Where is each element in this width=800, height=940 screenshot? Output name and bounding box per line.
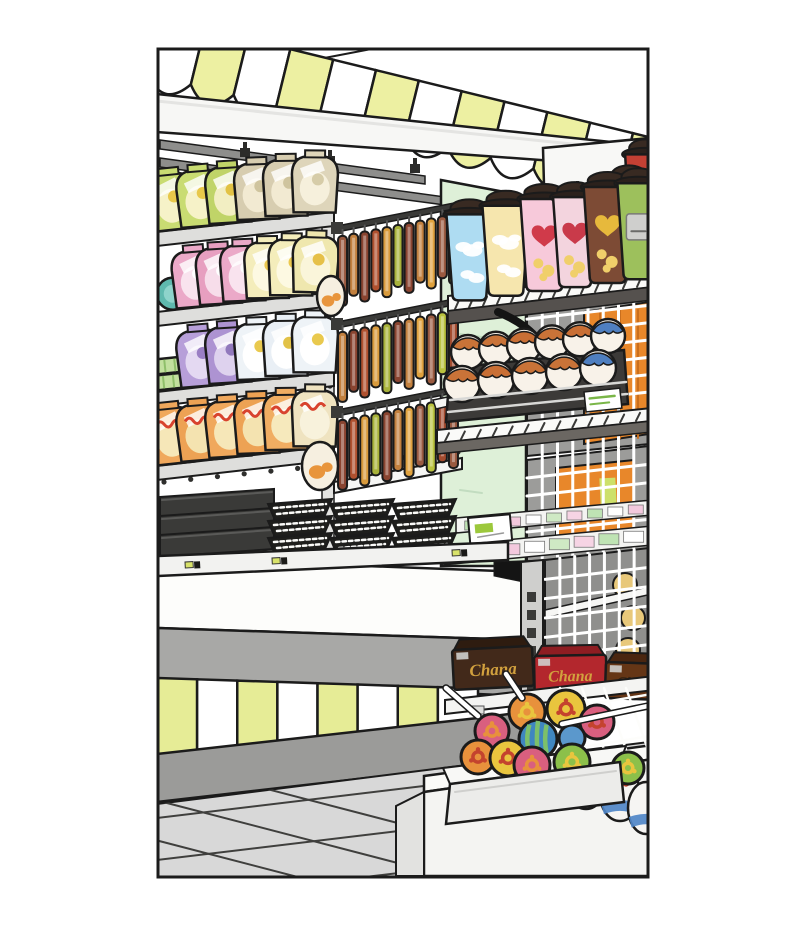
price-tag <box>608 507 623 516</box>
corner-tag <box>610 665 622 672</box>
bag-crimp <box>217 320 237 328</box>
bag-crimp <box>305 150 325 157</box>
ball-mark-dot <box>483 732 487 736</box>
store-illustration: ChanaChanaChana <box>0 0 800 940</box>
dot-motif <box>564 255 574 265</box>
price-tag <box>525 541 545 552</box>
bag-crimp <box>158 401 179 410</box>
awning-scallop-panel <box>157 678 197 760</box>
bag-crimp <box>187 324 208 333</box>
tag-yellow <box>185 562 193 568</box>
bun <box>546 354 582 390</box>
ball-mark-dot <box>556 711 560 715</box>
tag-black <box>281 557 287 564</box>
stick-sheen <box>419 321 422 373</box>
stick-sheen <box>374 233 377 285</box>
bun <box>580 350 616 386</box>
price-tag <box>587 509 602 518</box>
bag-crimp <box>187 398 208 407</box>
tube-bracket <box>243 142 247 149</box>
bag-crimp <box>276 314 296 321</box>
ball-mark-dot <box>563 763 567 767</box>
left-snack-shelves <box>145 150 339 480</box>
tube-bracket <box>410 164 420 173</box>
rail-bracket <box>331 406 343 418</box>
dot-motif <box>570 270 578 278</box>
jar-spot <box>322 462 333 472</box>
post-slot <box>527 628 536 638</box>
cloud-motif <box>468 273 484 283</box>
store-scene: ChanaChanaChana <box>0 0 800 940</box>
beverage-cup <box>614 168 662 279</box>
stick-sheen <box>419 225 422 277</box>
bag-crimp <box>306 230 326 238</box>
stick-sheen <box>341 424 344 484</box>
ball-mark-dot <box>497 732 501 736</box>
pack-stripe <box>174 359 175 370</box>
ball-mark-dot <box>564 698 568 702</box>
bun <box>512 358 548 394</box>
shelf-tag <box>272 557 287 565</box>
pack-stripe <box>173 376 174 387</box>
bag-crimp <box>246 391 266 399</box>
stick-sheen <box>363 332 366 392</box>
jar-shell <box>317 276 345 316</box>
stick-sheen <box>352 334 355 386</box>
egg-candy <box>628 782 664 834</box>
egg-jar <box>317 276 345 316</box>
stick-sheen <box>397 325 400 377</box>
ball-mark-dot <box>476 747 480 751</box>
ball-mark-dot <box>626 759 630 763</box>
stick-sheen <box>408 323 411 383</box>
ball-mark-dot <box>506 748 510 752</box>
cloud-motif <box>505 267 521 277</box>
stick-sheen <box>385 415 388 475</box>
bun <box>478 362 514 398</box>
bag-crimp <box>187 164 208 173</box>
stick-sheen <box>430 222 433 282</box>
board-tag <box>475 523 494 534</box>
ball-mark-dot <box>570 752 574 756</box>
pedestal-side <box>396 792 424 876</box>
dot-motif <box>597 249 607 259</box>
corner-tag <box>538 659 550 666</box>
pack-stripe <box>163 377 164 388</box>
bag-crimp <box>217 160 237 168</box>
pack-stripe <box>164 360 165 371</box>
awning-scallop-panel <box>197 679 237 756</box>
tube-bracket <box>328 150 332 157</box>
bag-crimp <box>305 384 325 391</box>
stick-sheen <box>430 318 433 378</box>
stick-sheen <box>352 238 355 290</box>
stick-sheen <box>430 406 433 466</box>
post-slot <box>527 592 536 602</box>
sign-card <box>584 388 622 412</box>
stick-sheen <box>374 329 377 381</box>
stick-sheen <box>441 316 444 368</box>
stick-sheen <box>419 409 422 461</box>
jar-spot <box>332 293 340 301</box>
ball-mark-dot <box>469 758 473 762</box>
price-tag <box>549 539 569 550</box>
snack-bag <box>292 150 339 212</box>
bag-crimp <box>276 154 296 161</box>
bag-logo-dot <box>312 333 324 345</box>
ball-mark-dot <box>499 759 503 763</box>
bag-crimp <box>246 317 266 325</box>
shelf-tag <box>452 549 467 557</box>
ball-mark-dot <box>571 711 575 715</box>
price-tag <box>574 536 594 547</box>
stick-sheen <box>352 422 355 474</box>
tag-black <box>194 561 200 568</box>
bag-crimp <box>158 167 179 176</box>
price-tag <box>547 513 562 522</box>
ball-mark-dot <box>483 758 487 762</box>
bun <box>591 319 625 353</box>
stick-sheen <box>397 229 400 281</box>
ball-mark-dot <box>602 723 606 727</box>
cloud-motif <box>472 242 484 249</box>
ball-stripe <box>545 725 546 754</box>
peg-dot <box>295 466 300 471</box>
stick-sheen <box>341 336 344 396</box>
ball-mark-dot <box>532 713 536 717</box>
stick-sheen <box>385 231 388 291</box>
bag-crimp <box>217 394 237 402</box>
bag-crimp <box>246 157 266 165</box>
price-tag <box>624 531 644 542</box>
price-sign <box>584 388 622 412</box>
ball-mark-dot <box>525 702 529 706</box>
dot-motif <box>539 273 547 281</box>
stick-sheen <box>374 417 377 469</box>
label-board <box>468 514 512 544</box>
egg-jar <box>302 442 338 490</box>
chocolate-box: Chana <box>451 636 534 690</box>
tag-yellow <box>452 550 460 556</box>
ball-mark-dot <box>530 755 534 759</box>
bag-crimp <box>276 388 296 395</box>
peg-dot <box>268 468 273 473</box>
stick-sheen <box>385 327 388 387</box>
ball-mark-dot <box>632 769 636 773</box>
stick-sheen <box>397 413 400 465</box>
fence-wire <box>648 688 688 800</box>
price-tag <box>599 534 619 545</box>
price-tag <box>567 511 582 520</box>
stick-sheen <box>408 411 411 471</box>
price-tag <box>628 505 643 514</box>
ball-mark-dot <box>537 766 541 770</box>
tag-black <box>461 549 467 556</box>
tag-yellow <box>272 558 280 564</box>
tile-line <box>140 876 660 940</box>
tube-bracket <box>240 148 250 157</box>
peg-dot <box>215 474 220 479</box>
ball-mark-dot <box>490 721 494 725</box>
stick-sheen <box>363 420 366 480</box>
shelf-tag <box>185 561 200 569</box>
ball-mark-dot <box>518 713 522 717</box>
stick-sheen <box>441 220 444 272</box>
rail-bracket <box>331 222 343 234</box>
price-tag <box>526 515 541 524</box>
ball-mark-dot <box>588 723 592 727</box>
stick-sheen <box>408 227 411 287</box>
corner-tag <box>456 652 468 660</box>
dot-motif <box>603 265 611 273</box>
rail-bracket <box>331 318 343 330</box>
peg-dot <box>188 477 193 482</box>
post-slot <box>527 610 536 620</box>
stick-sheen <box>363 236 366 296</box>
tube-bracket <box>413 158 417 165</box>
peg-dot <box>242 471 247 476</box>
ball-mark-dot <box>523 766 527 770</box>
cloud-motif <box>509 234 521 241</box>
dot-motif <box>533 258 543 268</box>
bag-logo-dot <box>312 173 324 185</box>
